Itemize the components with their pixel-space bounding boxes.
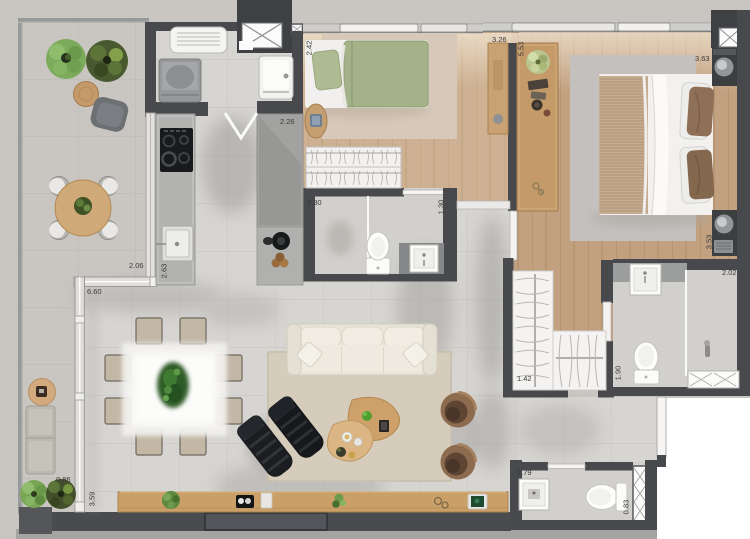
svg-text:3.59: 3.59 bbox=[88, 492, 97, 507]
svg-text:3.53: 3.53 bbox=[705, 235, 714, 250]
svg-text:0.86: 0.86 bbox=[56, 475, 71, 484]
svg-text:2.26: 2.26 bbox=[280, 117, 295, 126]
svg-text:1.42: 1.42 bbox=[517, 374, 532, 383]
svg-text:1.79: 1.79 bbox=[517, 468, 532, 477]
svg-text:2.06: 2.06 bbox=[129, 261, 144, 270]
svg-text:3.26: 3.26 bbox=[492, 35, 507, 44]
svg-text:2.30: 2.30 bbox=[307, 198, 322, 207]
svg-text:3.63: 3.63 bbox=[695, 54, 710, 63]
svg-text:1.90: 1.90 bbox=[614, 366, 623, 381]
svg-text:2.63: 2.63 bbox=[160, 264, 169, 279]
svg-text:6.60: 6.60 bbox=[87, 287, 102, 296]
svg-text:5.53: 5.53 bbox=[517, 42, 526, 57]
svg-text:2.02: 2.02 bbox=[722, 268, 737, 277]
svg-text:1.30: 1.30 bbox=[437, 200, 446, 215]
svg-text:0.83: 0.83 bbox=[622, 500, 631, 515]
svg-text:2.42: 2.42 bbox=[305, 41, 314, 56]
